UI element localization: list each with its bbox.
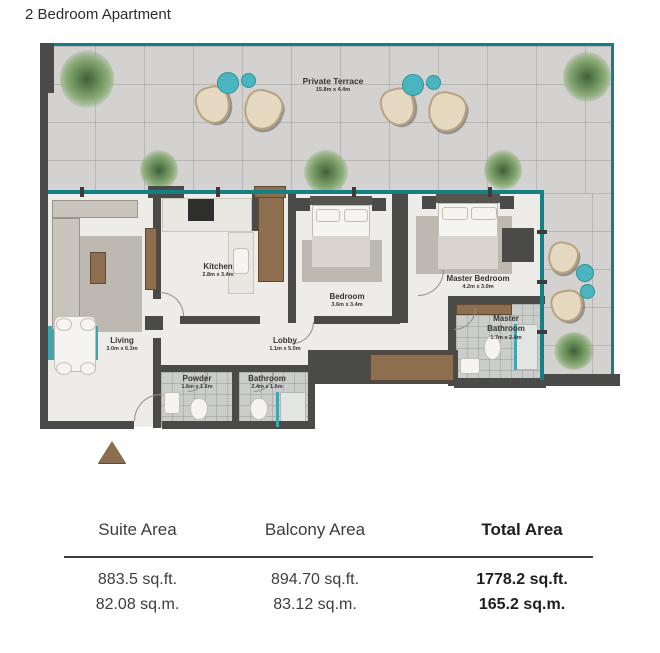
window-mullion (537, 330, 547, 334)
wall-powder-divider (232, 372, 239, 427)
window-mullion (216, 187, 220, 197)
balcony-area-column: Balcony Area 894.70 sq.ft. 83.12 sq.m. (240, 520, 390, 618)
table-divider (64, 556, 593, 558)
plant-icon (140, 150, 178, 190)
coffee-table-icon (90, 252, 106, 284)
total-area-sqm: 165.2 sq.m. (442, 596, 602, 618)
toilet-icon (250, 398, 268, 420)
balcony-window-line (540, 190, 544, 380)
sink-icon (460, 358, 480, 374)
bathroom-label: Bathroom 2.4m x 1.6m (248, 374, 286, 392)
dining-chair-icon (80, 362, 96, 375)
suite-area-column: Suite Area 883.5 sq.ft. 82.08 sq.m. (65, 520, 210, 618)
bench-cabinet (370, 354, 454, 381)
wall-left (40, 43, 48, 427)
kitchen-label: Kitchen 2.8m x 3.4m (202, 262, 233, 280)
plant-icon (60, 50, 114, 108)
dining-chair-icon (56, 318, 72, 331)
total-area-header: Total Area (442, 520, 602, 542)
master-bathroom-label: Master Bathroom 1.7m x 2.4m (478, 314, 534, 342)
wall-master-bottom (448, 296, 545, 304)
side-table-icon (402, 74, 424, 96)
sofa-icon (52, 200, 138, 218)
master-bedroom-label: Master Bedroom 4.2m x 3.0m (446, 274, 509, 292)
plant-icon (563, 52, 611, 102)
nightstand-icon (422, 196, 436, 209)
wardrobe-hall (258, 196, 284, 282)
plant-icon (554, 332, 594, 370)
balcony-area-sqft: 894.70 sq.ft. (240, 571, 390, 593)
window-mullion (488, 187, 492, 197)
pillow-icon (442, 207, 468, 220)
bed-blanket (438, 236, 498, 269)
living-label: Living 3.0m x 6.3m (106, 336, 137, 354)
lobby-label: Lobby 1.1m x 5.0m (269, 336, 300, 354)
wall-kitchen-bottom (180, 316, 260, 324)
dining-chair-icon (56, 362, 72, 375)
side-table-icon (241, 73, 256, 88)
window-mullion (80, 187, 84, 197)
dining-chair-icon (80, 318, 96, 331)
pillow-icon (316, 209, 340, 222)
side-table-icon (426, 75, 441, 90)
wall-left-top-block (40, 43, 54, 93)
window-mullion (352, 187, 356, 197)
wall-wetrooms-top (155, 365, 315, 372)
wall-bottom-living (40, 421, 134, 429)
toilet-icon (190, 398, 208, 420)
entrance-arrow-icon (98, 441, 126, 463)
suite-area-sqft: 883.5 sq.ft. (65, 571, 210, 593)
bedroom-label: Bedroom 3.6m x 3.4m (329, 292, 364, 310)
shower-glass (276, 392, 279, 427)
wall-balcony-bottom (540, 374, 620, 386)
side-table-icon (217, 72, 239, 94)
suite-area-sqm: 82.08 sq.m. (65, 596, 210, 618)
wall-bedroom-bottom (314, 316, 400, 324)
bed-headboard (310, 196, 372, 205)
floor-plan: Private Terrace 15.8m x 4.4m Living 3.0m… (40, 40, 620, 460)
wall-masterbath-bottom (454, 378, 546, 388)
page-title: 2 Bedroom Apartment (25, 6, 171, 23)
nightstand-icon (372, 198, 386, 211)
nightstand-icon (296, 198, 310, 211)
sink-icon (233, 248, 249, 274)
pillow-icon (471, 207, 497, 220)
plant-icon (304, 150, 348, 194)
window-mullion (537, 280, 547, 284)
balcony-area-sqm: 83.12 sq.m. (240, 596, 390, 618)
cooktop-icon (188, 199, 214, 221)
side-table-icon (576, 264, 594, 282)
side-table-icon (580, 284, 595, 299)
balcony-area-header: Balcony Area (240, 520, 390, 542)
wall-bedroom-right (392, 193, 408, 323)
master-wardrobe (502, 228, 534, 262)
terrace-window-line (48, 190, 543, 194)
wall-bedroom-left (288, 193, 296, 323)
suite-area-header: Suite Area (65, 520, 210, 542)
tv-unit (145, 228, 157, 290)
wall-kitchen-corner-block (145, 316, 163, 330)
nightstand-icon (500, 196, 514, 209)
total-area-sqft: 1778.2 sq.ft. (442, 571, 602, 593)
bed-blanket (312, 236, 370, 267)
pillow-icon (344, 209, 368, 222)
window-mullion (537, 230, 547, 234)
total-area-column: Total Area 1778.2 sq.ft. 165.2 sq.m. (442, 520, 602, 618)
sofa-icon (52, 218, 80, 330)
sink-icon (164, 392, 180, 414)
plant-icon (484, 150, 522, 190)
terrace-label: Private Terrace 15.8m x 4.4m (303, 76, 364, 94)
powder-label: Powder 1.6m x 1.6m (181, 374, 212, 392)
